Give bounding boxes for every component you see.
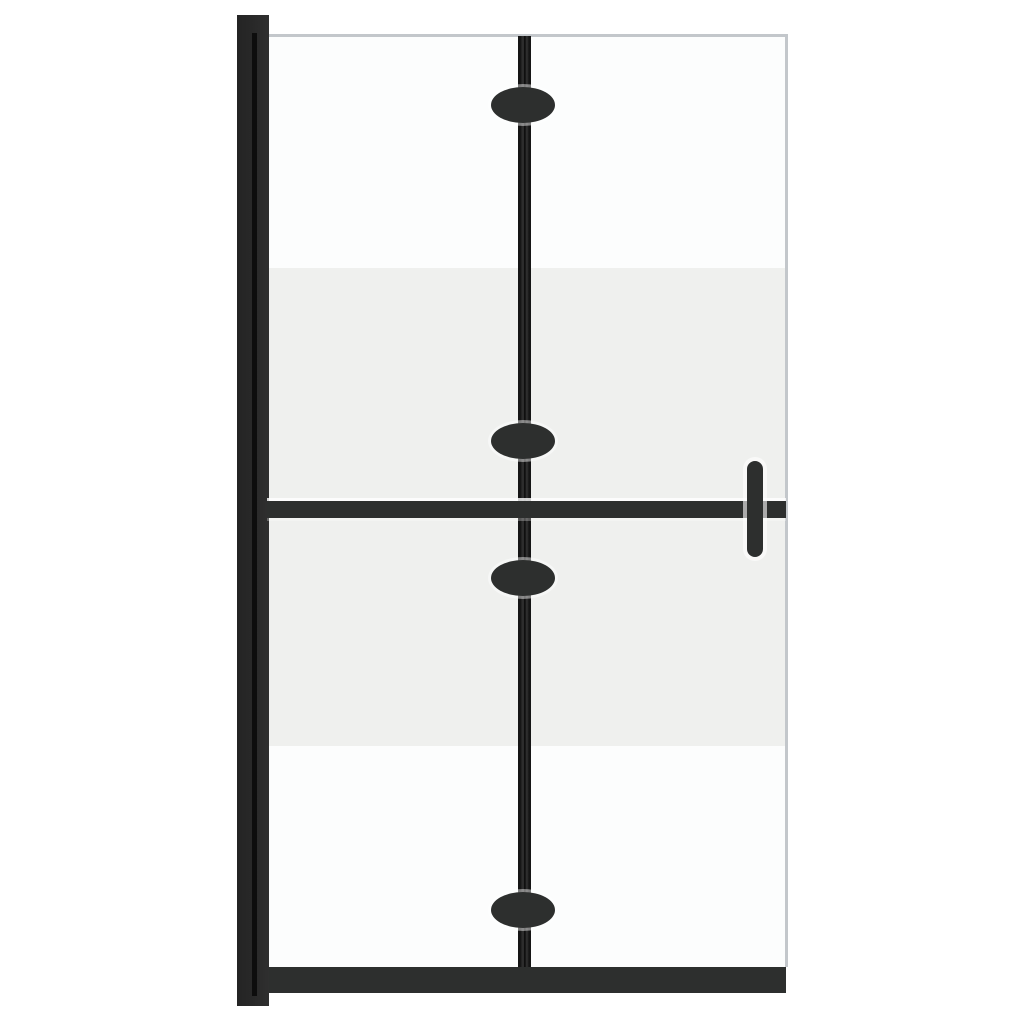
hinge-knob-upper-middle xyxy=(491,423,555,459)
bottom-frame-rail xyxy=(269,967,786,993)
wall-profile-groove xyxy=(252,33,257,996)
hinge-knob-top xyxy=(491,87,555,123)
hinge-knob-bottom xyxy=(491,892,555,928)
support-handle xyxy=(747,461,763,557)
product-image xyxy=(0,0,1024,1024)
support-crossbar xyxy=(267,501,786,518)
hinge-knob-lower-middle xyxy=(491,560,555,596)
